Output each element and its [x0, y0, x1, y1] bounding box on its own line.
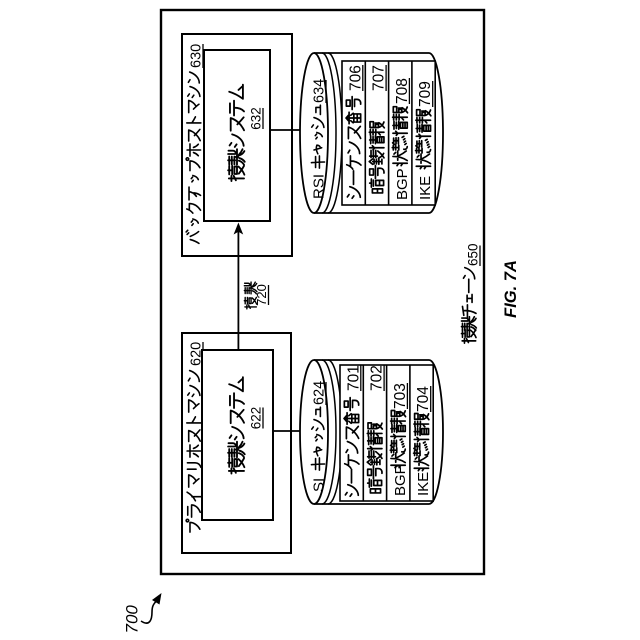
svg-text:706: 706: [347, 65, 364, 91]
svg-text:702: 702: [369, 365, 386, 391]
svg-text:RSI: RSI: [311, 174, 328, 199]
svg-text:634: 634: [312, 79, 328, 103]
svg-text:707: 707: [371, 65, 388, 91]
svg-text:FIG. 7A: FIG. 7A: [502, 260, 520, 318]
svg-text:IKE: IKE: [415, 472, 432, 496]
svg-text:703: 703: [392, 383, 409, 409]
svg-text:630: 630: [189, 44, 205, 68]
svg-text:622: 622: [249, 407, 264, 430]
svg-text:632: 632: [249, 107, 264, 130]
svg-text:IKE: IKE: [417, 176, 434, 200]
svg-text:624: 624: [312, 381, 328, 405]
svg-text:708: 708: [394, 78, 411, 104]
svg-text:701: 701: [345, 365, 362, 391]
svg-text:650: 650: [466, 243, 481, 266]
svg-text:704: 704: [415, 386, 432, 412]
svg-text:BGP: BGP: [394, 168, 411, 200]
svg-text:700: 700: [123, 605, 142, 634]
svg-text:SI: SI: [311, 478, 328, 492]
svg-text:720: 720: [254, 284, 269, 306]
svg-text:709: 709: [417, 81, 434, 107]
svg-text:BGP: BGP: [392, 464, 409, 496]
